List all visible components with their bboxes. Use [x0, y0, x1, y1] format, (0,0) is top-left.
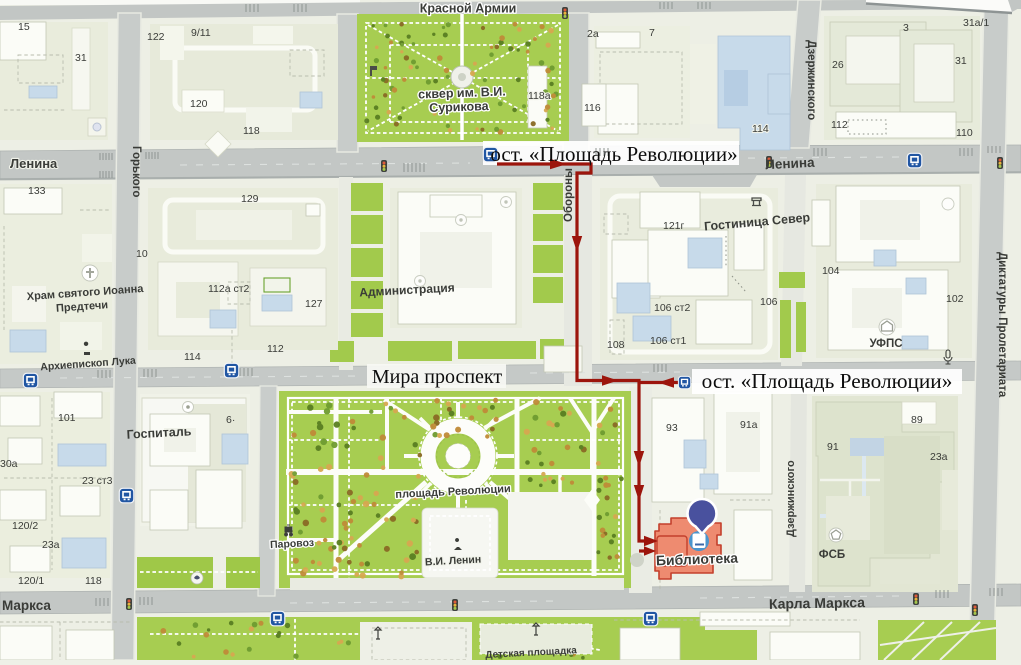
svg-text:Ленина: Ленина [10, 156, 58, 171]
svg-text:106 ст1: 106 ст1 [650, 335, 686, 347]
svg-text:ост. «Площадь Революции»: ост. «Площадь Революции» [490, 142, 737, 166]
svg-text:2a: 2a [587, 28, 599, 40]
svg-text:7: 7 [649, 27, 655, 39]
svg-text:108: 108 [607, 339, 625, 351]
svg-text:133: 133 [28, 185, 46, 197]
svg-text:114: 114 [752, 123, 769, 135]
svg-text:23a: 23a [42, 539, 60, 551]
svg-text:Библиотека: Библиотека [656, 550, 739, 569]
svg-text:120/2: 120/2 [12, 520, 38, 532]
svg-text:112: 112 [831, 119, 848, 131]
svg-text:6·: 6· [226, 414, 235, 426]
svg-text:31: 31 [75, 52, 87, 64]
svg-text:Карла Маркса: Карла Маркса [769, 594, 865, 612]
svg-text:120: 120 [190, 98, 208, 110]
svg-text:91: 91 [827, 441, 839, 453]
svg-text:23a: 23a [930, 451, 948, 463]
svg-text:3: 3 [903, 22, 909, 34]
svg-text:30a: 30a [0, 458, 18, 470]
svg-text:ост. «Площадь Революции»: ост. «Площадь Революции» [702, 369, 953, 393]
svg-text:114: 114 [184, 351, 201, 363]
svg-text:Мира проспект: Мира проспект [372, 366, 502, 388]
svg-text:112: 112 [267, 343, 284, 355]
svg-text:121г: 121г [663, 220, 685, 232]
svg-text:122: 122 [147, 31, 165, 43]
svg-text:Красной Армии: Красной Армии [420, 2, 517, 16]
svg-text:23 ст3: 23 ст3 [82, 475, 113, 487]
svg-text:106: 106 [760, 296, 778, 308]
svg-text:127: 127 [305, 298, 323, 310]
svg-text:УФПС: УФПС [869, 338, 902, 350]
svg-text:Горького: Горького [130, 146, 142, 197]
svg-text:Диктатуры Пролетариата: Диктатуры Пролетариата [996, 252, 1008, 398]
svg-text:31: 31 [955, 55, 967, 67]
svg-text:26: 26 [832, 59, 844, 71]
svg-text:102: 102 [946, 293, 964, 305]
svg-text:118a: 118a [528, 90, 551, 102]
svg-text:104: 104 [822, 265, 840, 277]
svg-text:Обороны: Обороны [563, 168, 575, 222]
svg-text:91a: 91a [740, 419, 758, 431]
svg-text:Дзержинского: Дзержинского [785, 460, 797, 537]
svg-text:129: 129 [241, 193, 259, 205]
svg-text:118: 118 [243, 125, 260, 137]
svg-text:Маркса: Маркса [2, 598, 51, 613]
svg-text:15: 15 [18, 21, 30, 33]
svg-text:10: 10 [136, 248, 148, 260]
svg-text:110: 110 [956, 127, 973, 139]
svg-text:116: 116 [584, 102, 601, 114]
svg-text:106 ст2: 106 ст2 [654, 302, 690, 314]
svg-text:31a/1: 31a/1 [963, 17, 989, 29]
svg-text:Ленина: Ленина [765, 155, 815, 173]
svg-text:93: 93 [666, 422, 678, 434]
svg-text:118: 118 [85, 575, 102, 587]
svg-text:112a ст2: 112a ст2 [208, 283, 250, 295]
svg-text:101: 101 [58, 412, 76, 424]
svg-text:ФСБ: ФСБ [819, 549, 845, 561]
svg-text:Паровоз: Паровоз [270, 537, 315, 551]
svg-text:9/11: 9/11 [191, 27, 211, 39]
svg-text:Сурикова: Сурикова [429, 99, 490, 115]
svg-text:89: 89 [911, 414, 923, 426]
svg-text:120/1: 120/1 [18, 575, 44, 587]
svg-text:Дзержинского: Дзержинского [805, 40, 817, 120]
